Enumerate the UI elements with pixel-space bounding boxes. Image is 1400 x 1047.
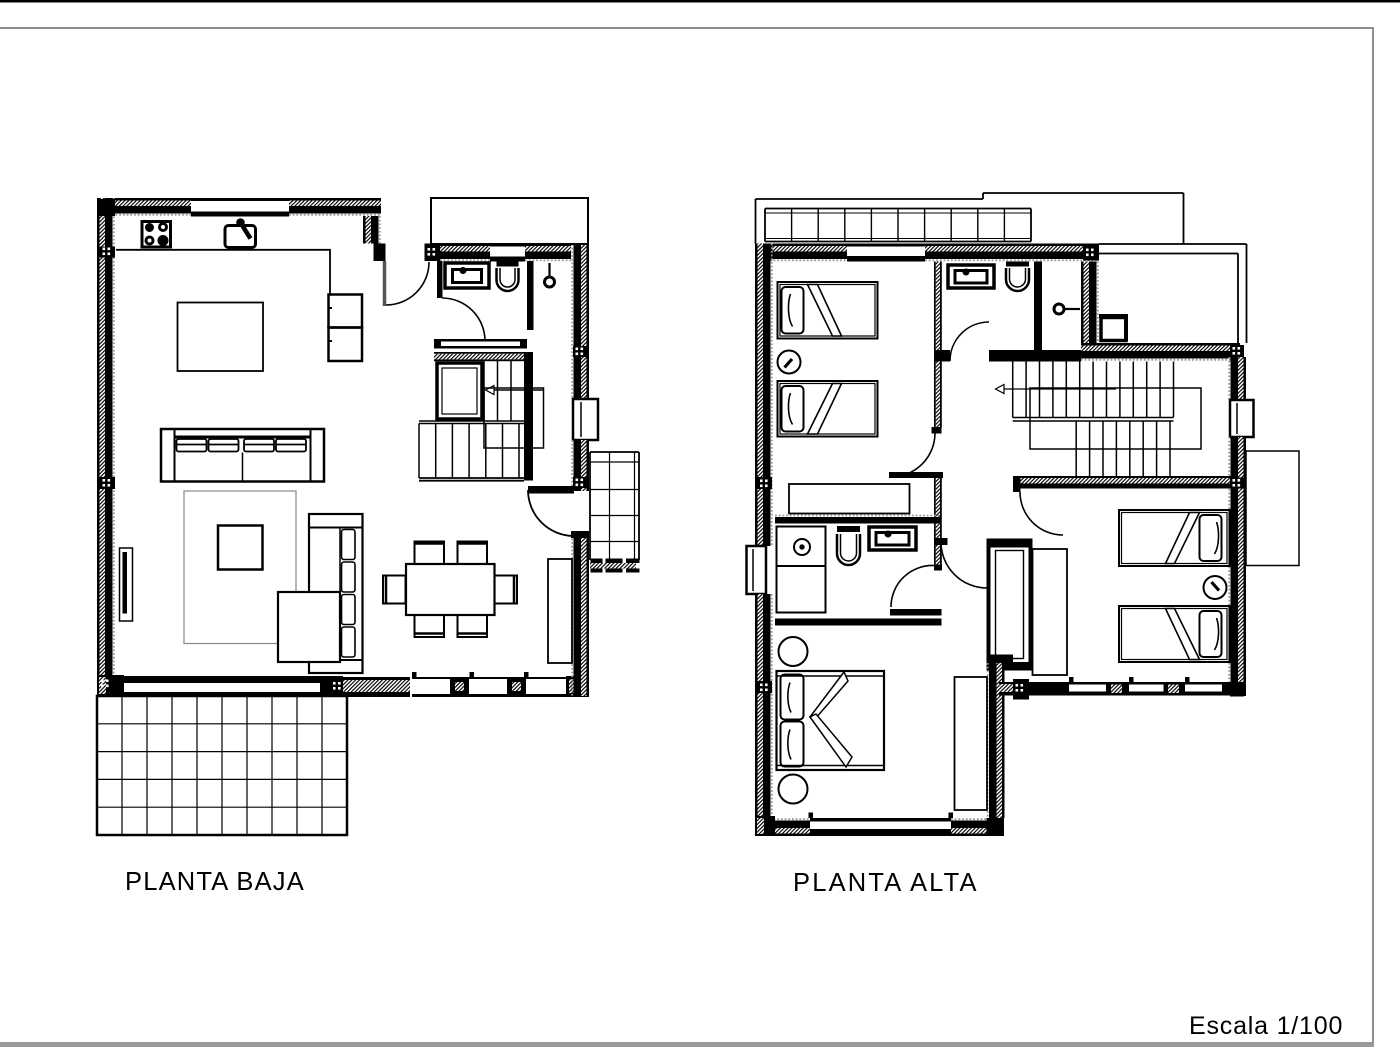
svg-text:Escala 1/100: Escala 1/100 — [1189, 1012, 1343, 1040]
svg-text:PLANTA ALTA: PLANTA ALTA — [793, 869, 979, 897]
svg-text:PLANTA BAJA: PLANTA BAJA — [125, 868, 305, 896]
